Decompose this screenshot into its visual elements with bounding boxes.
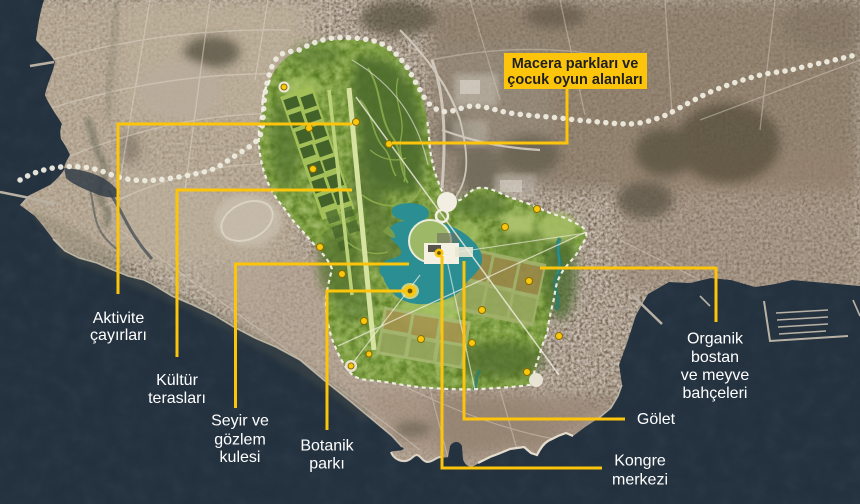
- svg-text:merkezi: merkezi: [612, 472, 668, 489]
- svg-text:Seyir ve: Seyir ve: [211, 413, 269, 430]
- svg-text:bostan: bostan: [691, 349, 739, 366]
- svg-text:parkı: parkı: [309, 456, 345, 473]
- svg-text:bahçeleri: bahçeleri: [683, 385, 748, 402]
- svg-text:Macera parkları ve: Macera parkları ve: [512, 56, 639, 72]
- svg-text:ve meyve: ve meyve: [681, 367, 750, 384]
- svg-text:Aktivite: Aktivite: [93, 310, 145, 327]
- svg-text:Gölet: Gölet: [637, 411, 676, 428]
- svg-text:Organik: Organik: [687, 331, 744, 348]
- svg-text:gözlem: gözlem: [214, 432, 266, 449]
- svg-text:kulesi: kulesi: [220, 449, 261, 466]
- svg-text:çayırları: çayırları: [90, 327, 147, 344]
- svg-text:Kültür: Kültür: [156, 372, 198, 389]
- svg-text:terasları: terasları: [148, 390, 206, 407]
- svg-text:çocuk oyun alanları: çocuk oyun alanları: [507, 72, 642, 88]
- svg-text:Botanik: Botanik: [300, 438, 354, 455]
- svg-text:Kongre: Kongre: [614, 453, 666, 470]
